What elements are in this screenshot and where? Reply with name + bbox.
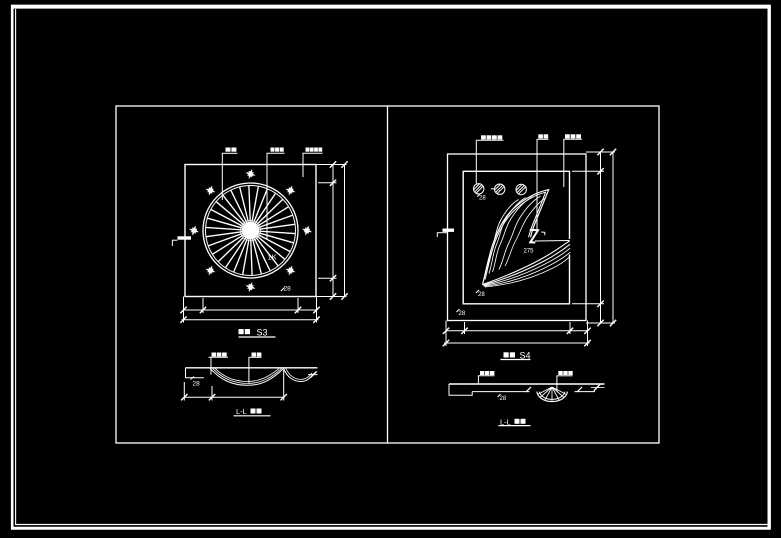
svg-text:S3: S3 xyxy=(257,328,268,338)
svg-text:28: 28 xyxy=(500,396,507,402)
svg-text:28: 28 xyxy=(478,292,485,298)
svg-text:28: 28 xyxy=(193,381,201,388)
svg-text:1K: 1K xyxy=(268,253,277,262)
svg-text:28: 28 xyxy=(459,311,466,317)
svg-text:28: 28 xyxy=(479,196,486,202)
svg-text:L-L: L-L xyxy=(236,407,247,416)
svg-text:28: 28 xyxy=(284,286,292,293)
svg-text:275: 275 xyxy=(524,249,535,255)
